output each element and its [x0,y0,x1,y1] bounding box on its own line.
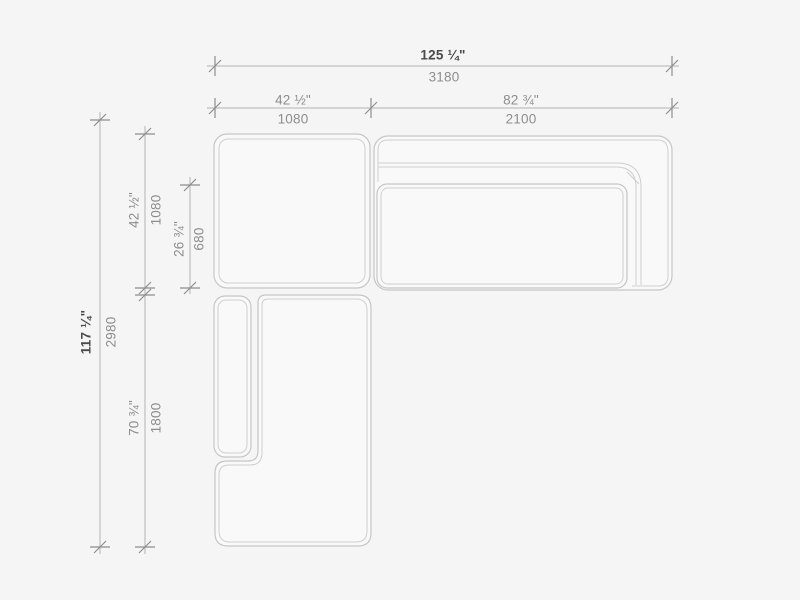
dimension-label-left-section-width-inches: 42 ½" [275,93,311,107]
dimension-label-seat-depth-inches: 26 ¾" [172,221,186,257]
dimension-label-overall-depth-mm: 2980 [104,317,118,348]
dimension-label-seat-depth-mm: 680 [192,227,206,250]
chaise-module-outline [214,295,371,546]
dimension-label-overall-width-mm: 3180 [429,70,460,84]
dimension-label-overall-width-inches: 125 ¼" [420,48,465,62]
dimension-label-corner-depth-inches: 42 ½" [127,192,141,228]
sofa-dimension-drawing: 125 ¼" 3180 42 ½" 1080 82 ¾" 2100 117 ¼"… [0,0,800,600]
chaise-backrest-outline [214,296,251,457]
plan-drawing-svg [0,0,800,600]
dimension-label-right-section-width-mm: 2100 [506,112,537,126]
dimension-label-overall-depth-inches: 117 ¼" [79,310,93,354]
sofa-module-outline [374,136,672,290]
dimension-label-corner-depth-mm: 1080 [149,195,163,226]
corner-module-outline [214,134,370,288]
dimension-label-chaise-length-mm: 1800 [149,403,163,434]
dimension-label-right-section-width-inches: 82 ¾" [503,93,539,107]
dimension-label-left-section-width-mm: 1080 [278,112,309,126]
seat-cushion-outline [377,184,627,288]
dimension-label-chaise-length-inches: 70 ¾" [127,400,141,436]
